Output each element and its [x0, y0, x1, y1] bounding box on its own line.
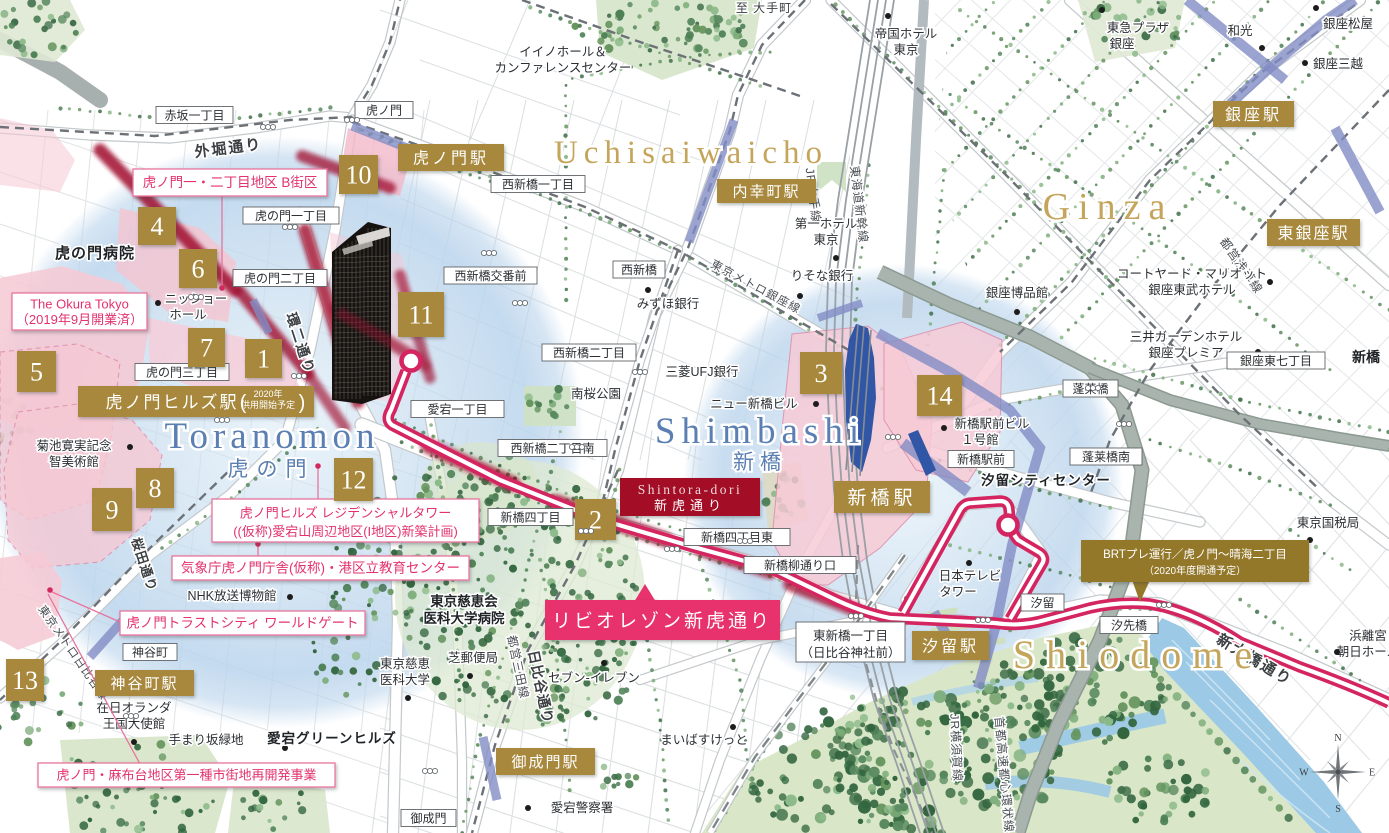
svg-text:S: S: [1335, 804, 1341, 815]
svg-text:虎ノ門駅: 虎ノ門駅: [413, 149, 489, 167]
svg-text:Shimbashi: Shimbashi: [655, 411, 865, 452]
svg-text:The Okura Tokyo: The Okura Tokyo: [30, 297, 129, 312]
svg-text:12: 12: [341, 466, 367, 495]
svg-text:銀座博品館: 銀座博品館: [986, 285, 1049, 300]
svg-text:新橋駅前: 新橋駅前: [957, 451, 1005, 466]
svg-text:コートヤード・マリオット: コートヤード・マリオット: [1117, 267, 1267, 281]
svg-text:Shiodome: Shiodome: [1013, 632, 1263, 677]
svg-text:5: 5: [30, 358, 43, 387]
svg-text:新橋駅前ビル: 新橋駅前ビル: [954, 416, 1029, 431]
svg-text:三菱UFJ銀行: 三菱UFJ銀行: [666, 365, 739, 379]
svg-text:菊池寛実記念: 菊池寛実記念: [36, 438, 112, 453]
svg-text:朝日ホール: 朝日ホール: [1337, 645, 1389, 659]
svg-text:まいばすけっと: まいばすけっと: [660, 733, 748, 747]
svg-text:4: 4: [151, 212, 164, 241]
svg-text:芝郵便局: 芝郵便局: [448, 650, 498, 665]
svg-text:カンファレンスセンター: カンファレンスセンター: [495, 61, 632, 75]
svg-text:銀座プレミア: 銀座プレミア: [1148, 345, 1223, 360]
svg-text:虎の門三丁目: 虎の門三丁目: [146, 365, 218, 379]
svg-text:東急プラザ: 東急プラザ: [1107, 20, 1170, 35]
svg-text:NHK放送博物館: NHK放送博物館: [188, 588, 277, 603]
svg-text:東京: 東京: [893, 43, 918, 57]
svg-text:東京: 東京: [813, 233, 838, 247]
svg-text:東銀座駅: 東銀座駅: [1277, 224, 1349, 242]
svg-text:1: 1: [257, 345, 270, 374]
svg-text:西新橋二丁目: 西新橋二丁目: [553, 345, 625, 360]
svg-text:虎ノ門トラストシティ ワールドゲート: 虎ノ門トラストシティ ワールドゲート: [126, 616, 358, 631]
svg-text:愛宕一丁目: 愛宕一丁目: [427, 401, 487, 416]
svg-text:新橋: 新橋: [733, 451, 787, 474]
svg-text:新橋駅: 新橋駅: [847, 487, 916, 509]
svg-text:イイノホール＆: イイノホール＆: [519, 45, 607, 59]
svg-text:Toranomon: Toranomon: [164, 416, 379, 457]
svg-text:虎ノ門ヒルズ レジデンシャルタワー: 虎ノ門ヒルズ レジデンシャルタワー: [240, 506, 452, 521]
svg-text:セブン-イレブン: セブン-イレブン: [548, 670, 640, 685]
svg-text:内幸町駅: 内幸町駅: [732, 183, 800, 200]
svg-text:((仮称)愛宕山周辺地区(I地区)新築計画): ((仮称)愛宕山周辺地区(I地区)新築計画): [233, 524, 458, 539]
svg-text:6: 6: [192, 255, 205, 284]
svg-text:新橋四丁目東: 新橋四丁目東: [701, 529, 773, 544]
svg-text:Shintora-dori: Shintora-dori: [638, 482, 743, 497]
svg-text:在日オランダ: 在日オランダ: [96, 700, 171, 715]
svg-text:銀座松屋: 銀座松屋: [1323, 16, 1373, 31]
svg-text:御成門駅: 御成門駅: [511, 754, 579, 771]
svg-text:汐留駅: 汐留駅: [922, 637, 979, 655]
svg-text:W: W: [1299, 768, 1309, 779]
svg-text:蓬莱橋南: 蓬莱橋南: [1082, 449, 1130, 464]
svg-text:新虎通り: 新虎通り: [654, 498, 726, 513]
svg-text:りそな銀行: りそな銀行: [791, 269, 854, 283]
svg-text:): ): [299, 392, 306, 414]
svg-text:（日比谷神社前）: （日比谷神社前）: [800, 645, 900, 660]
svg-text:虎の門: 虎の門: [228, 458, 315, 481]
svg-text:西新橋一丁目: 西新橋一丁目: [502, 176, 574, 191]
svg-text:Uchisaiwaicho: Uchisaiwaicho: [554, 135, 828, 171]
svg-text:虎の門病院: 虎の門病院: [55, 244, 135, 262]
svg-text:医科大学: 医科大学: [380, 672, 430, 687]
svg-text:虎ノ門一・二丁目地区 B街区: 虎ノ門一・二丁目地区 B街区: [143, 175, 318, 190]
svg-text:１号館: １号館: [961, 432, 999, 447]
svg-text:汐留シティセンター: 汐留シティセンター: [981, 472, 1111, 488]
svg-text:帝国ホテル: 帝国ホテル: [875, 26, 938, 41]
svg-text:11: 11: [408, 301, 433, 330]
svg-text:銀座三越: 銀座三越: [1313, 56, 1364, 71]
svg-text:東京国税局: 東京国税局: [1297, 516, 1360, 530]
svg-text:第一ホテル: 第一ホテル: [795, 217, 858, 231]
svg-text:御成門: 御成門: [410, 810, 446, 825]
svg-text:新橋四丁目: 新橋四丁目: [500, 509, 560, 524]
svg-text:2020年: 2020年: [253, 388, 282, 399]
svg-text:汐留: 汐留: [1030, 595, 1054, 610]
svg-text:西新橋: 西新橋: [621, 262, 657, 277]
svg-text:西新橋交番前: 西新橋交番前: [454, 268, 526, 283]
svg-text:銀座東武ホテル: 銀座東武ホテル: [1148, 282, 1236, 297]
svg-text:手まり坂緑地: 手まり坂緑地: [168, 732, 244, 747]
svg-text:南桜公園: 南桜公園: [571, 386, 621, 401]
svg-text:N: N: [1334, 733, 1341, 744]
svg-text:新橋柳通り口: 新橋柳通り口: [764, 557, 836, 572]
svg-text:虎ノ門: 虎ノ門: [366, 103, 402, 117]
svg-text:Ginza: Ginza: [1043, 186, 1174, 228]
svg-text:和光: 和光: [1227, 24, 1252, 38]
svg-text:3: 3: [815, 359, 828, 388]
svg-text:9: 9: [106, 496, 119, 525]
svg-text:銀座駅: 銀座駅: [1225, 106, 1282, 124]
svg-text:みずほ銀行: みずほ銀行: [637, 297, 700, 311]
svg-text:三井ガーデンホテル: 三井ガーデンホテル: [1130, 329, 1243, 344]
svg-text:(: (: [240, 392, 247, 414]
svg-text:8: 8: [149, 474, 162, 503]
svg-text:東京慈恵会: 東京慈恵会: [430, 593, 498, 609]
svg-text:リビオレゾン新虎通り: リビオレゾン新虎通り: [552, 610, 772, 632]
svg-text:愛宕警察署: 愛宕警察署: [551, 800, 614, 815]
svg-text:銀座: 銀座: [1109, 36, 1134, 51]
svg-text:智美術館: 智美術館: [49, 454, 99, 469]
svg-text:（2020年度開通予定）: （2020年度開通予定）: [1144, 564, 1246, 577]
svg-text:E: E: [1369, 768, 1375, 779]
svg-text:新橋: 新橋: [1352, 349, 1381, 365]
svg-text:虎の門二丁目: 虎の門二丁目: [244, 271, 316, 285]
svg-text:医科大学病院: 医科大学病院: [424, 610, 505, 626]
svg-text:至 大手町: 至 大手町: [736, 1, 792, 15]
svg-text:供用開始予定: 供用開始予定: [241, 399, 295, 410]
svg-text:（2019年9月開業済）: （2019年9月開業済）: [16, 312, 143, 327]
svg-text:銀座東七丁目: 銀座東七丁目: [1240, 353, 1312, 368]
svg-text:ホール: ホール: [169, 308, 207, 322]
svg-text:日本テレビ: 日本テレビ: [939, 569, 1002, 583]
svg-text:虎ノ門ヒルズ駅: 虎ノ門ヒルズ駅: [106, 393, 239, 412]
svg-text:東新橋一丁目: 東新橋一丁目: [813, 628, 888, 643]
svg-text:東京慈恵: 東京慈恵: [380, 656, 430, 671]
svg-text:タワー: タワー: [939, 585, 977, 599]
svg-text:虎の門一丁目: 虎の門一丁目: [255, 209, 327, 223]
svg-text:10: 10: [346, 161, 372, 190]
svg-text:神谷町駅: 神谷町駅: [110, 675, 178, 692]
svg-text:赤坂一丁目: 赤坂一丁目: [164, 108, 224, 122]
svg-text:神谷町: 神谷町: [132, 645, 168, 659]
svg-text:汐先橋: 汐先橋: [1111, 617, 1147, 632]
svg-text:7: 7: [200, 334, 213, 363]
svg-text:ニュー新橋ビル: ニュー新橋ビル: [710, 396, 798, 411]
svg-text:13: 13: [12, 666, 38, 695]
svg-text:気象庁虎ノ門庁舎(仮称)・港区立教育センター: 気象庁虎ノ門庁舎(仮称)・港区立教育センター: [181, 561, 460, 576]
svg-text:浜離宮: 浜離宮: [1349, 628, 1387, 643]
svg-text:愛宕グリーンヒルズ: 愛宕グリーンヒルズ: [267, 730, 397, 746]
svg-text:虎ノ門・麻布台地区第一種市街地再開発事業: 虎ノ門・麻布台地区第一種市街地再開発事業: [56, 768, 316, 783]
svg-text:14: 14: [927, 382, 953, 411]
svg-text:BRTプレ運行／虎ノ門〜晴海二丁目: BRTプレ運行／虎ノ門〜晴海二丁目: [1103, 547, 1287, 561]
